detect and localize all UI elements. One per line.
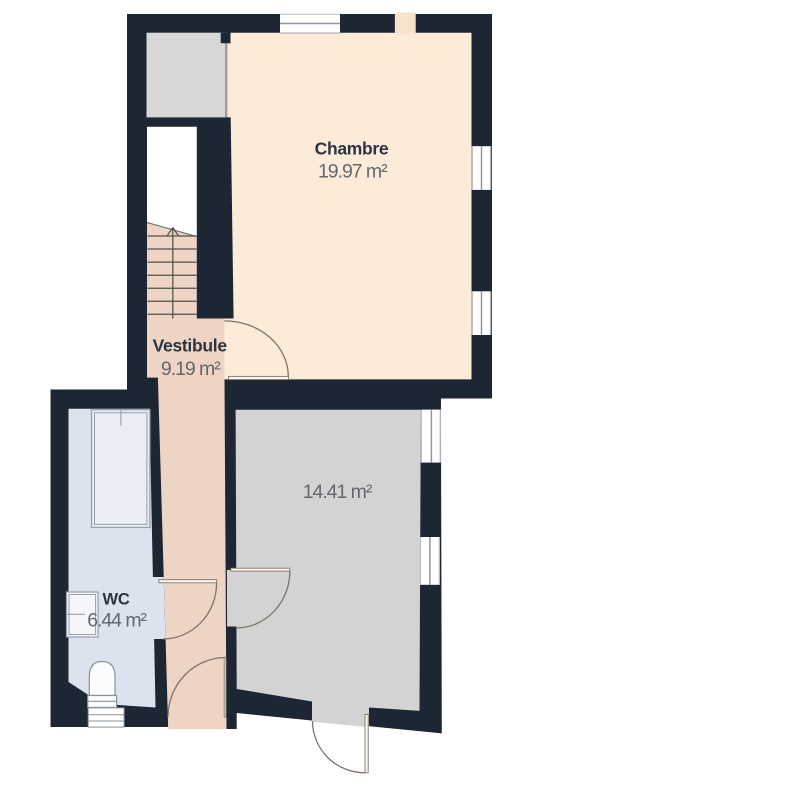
svg-text:6.44 m²: 6.44 m² — [87, 610, 147, 632]
svg-text:9.19 m²: 9.19 m² — [161, 358, 221, 380]
svg-text:19.97 m²: 19.97 m² — [318, 160, 388, 182]
svg-text:14.41 m²: 14.41 m² — [303, 481, 373, 503]
svg-text:WC: WC — [103, 591, 130, 609]
svg-text:Vestibule: Vestibule — [153, 336, 228, 356]
svg-text:Chambre: Chambre — [315, 138, 389, 158]
